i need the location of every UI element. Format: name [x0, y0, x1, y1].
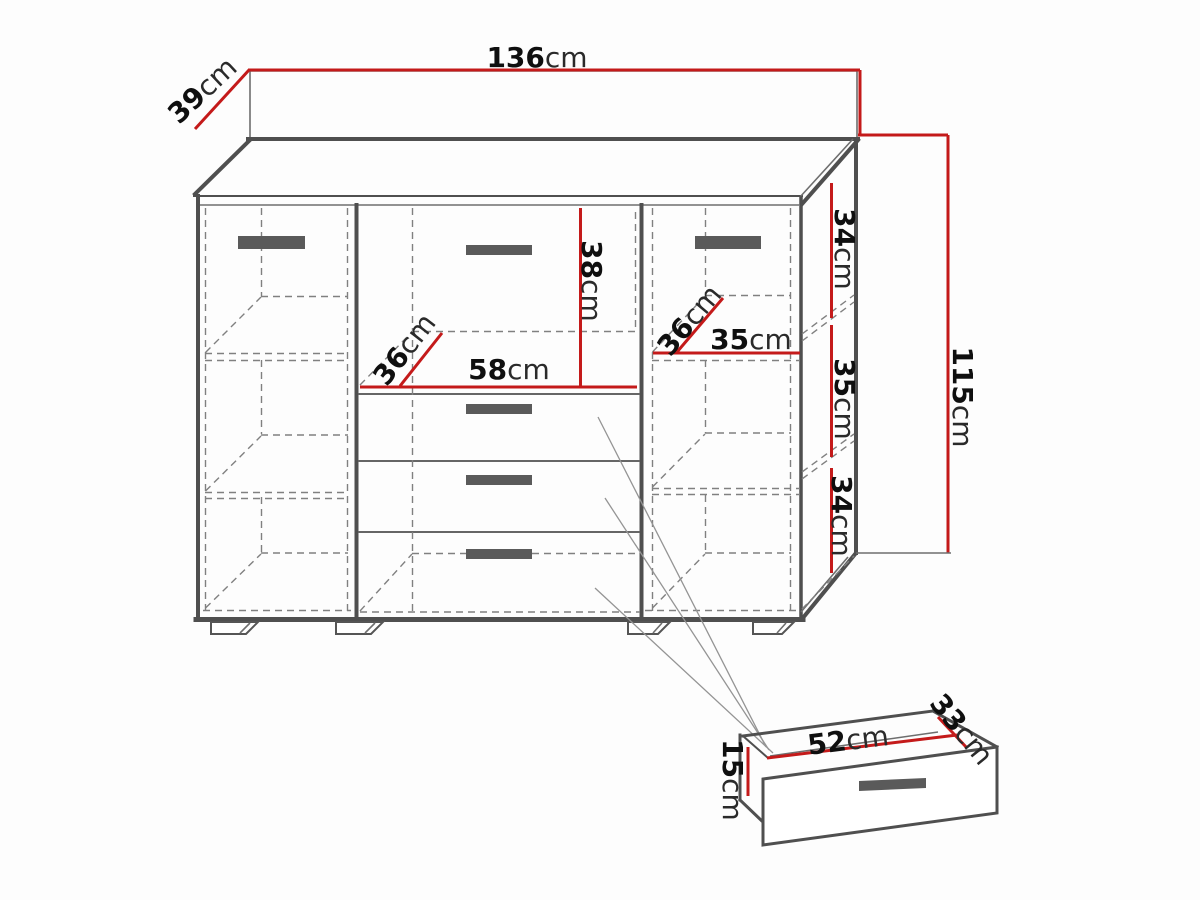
leader-lines — [595, 417, 773, 753]
side-shelf-dashed — [802, 302, 854, 341]
label-drawer-detail-height: 15cm — [717, 739, 750, 821]
label-height-total: 115cm — [947, 346, 980, 447]
shelf-diagonal-dashed — [206, 297, 262, 353]
right-door-handle — [695, 236, 761, 249]
right-bottom-bevel-inner-edge — [801, 557, 848, 612]
drawer3-handle — [466, 475, 532, 485]
floor-diagonal-dashed — [653, 554, 706, 608]
label-side-section-bot: 34cm — [826, 475, 859, 557]
side-shelf-dashed — [802, 441, 854, 479]
foot — [336, 622, 383, 634]
label-drawer-top-width: 58cm — [468, 353, 550, 386]
top-drawer-handle — [466, 245, 532, 255]
top-left-slant-edge — [195, 140, 250, 194]
dimension-labels: 136cm 39cm 38cm 36cm 58cm 36cm 35cm 34cm… — [161, 41, 1001, 821]
handles — [238, 236, 761, 559]
drawer-front-panel — [763, 747, 997, 845]
shelf-diagonal-dashed — [653, 434, 706, 487]
drawer2-handle — [466, 404, 532, 414]
leader-line-drawer4 — [595, 588, 773, 753]
furniture-dimension-diagram: 136cm 39cm 38cm 36cm 58cm 36cm 35cm 34cm… — [0, 0, 1200, 900]
label-drawer-top-height: 38cm — [576, 240, 609, 322]
left-door-handle — [238, 236, 305, 249]
foot — [753, 622, 794, 634]
left-compartment-hidden-structure — [203, 208, 351, 612]
label-side-section-mid: 35cm — [829, 358, 862, 440]
foot — [211, 622, 258, 634]
top-right-slant-inner-edge — [800, 139, 853, 197]
shelf-diagonal-dashed — [206, 436, 262, 491]
label-side-section-top: 34cm — [829, 208, 862, 290]
cabinet-feet — [211, 622, 794, 634]
side-shelf-dashed — [802, 295, 854, 334]
floor-diagonal-dashed — [206, 554, 262, 608]
right-compartment-hidden-structure — [645, 208, 800, 612]
label-shelf-right-width: 35cm — [710, 323, 792, 356]
diagram-canvas: 136cm 39cm 38cm 36cm 58cm 36cm 35cm 34cm… — [0, 0, 1200, 900]
leader-line-drawer2 — [598, 417, 766, 747]
label-width-total: 136cm — [486, 41, 587, 74]
dashed-line — [360, 554, 412, 611]
drawer4-handle — [466, 549, 532, 559]
